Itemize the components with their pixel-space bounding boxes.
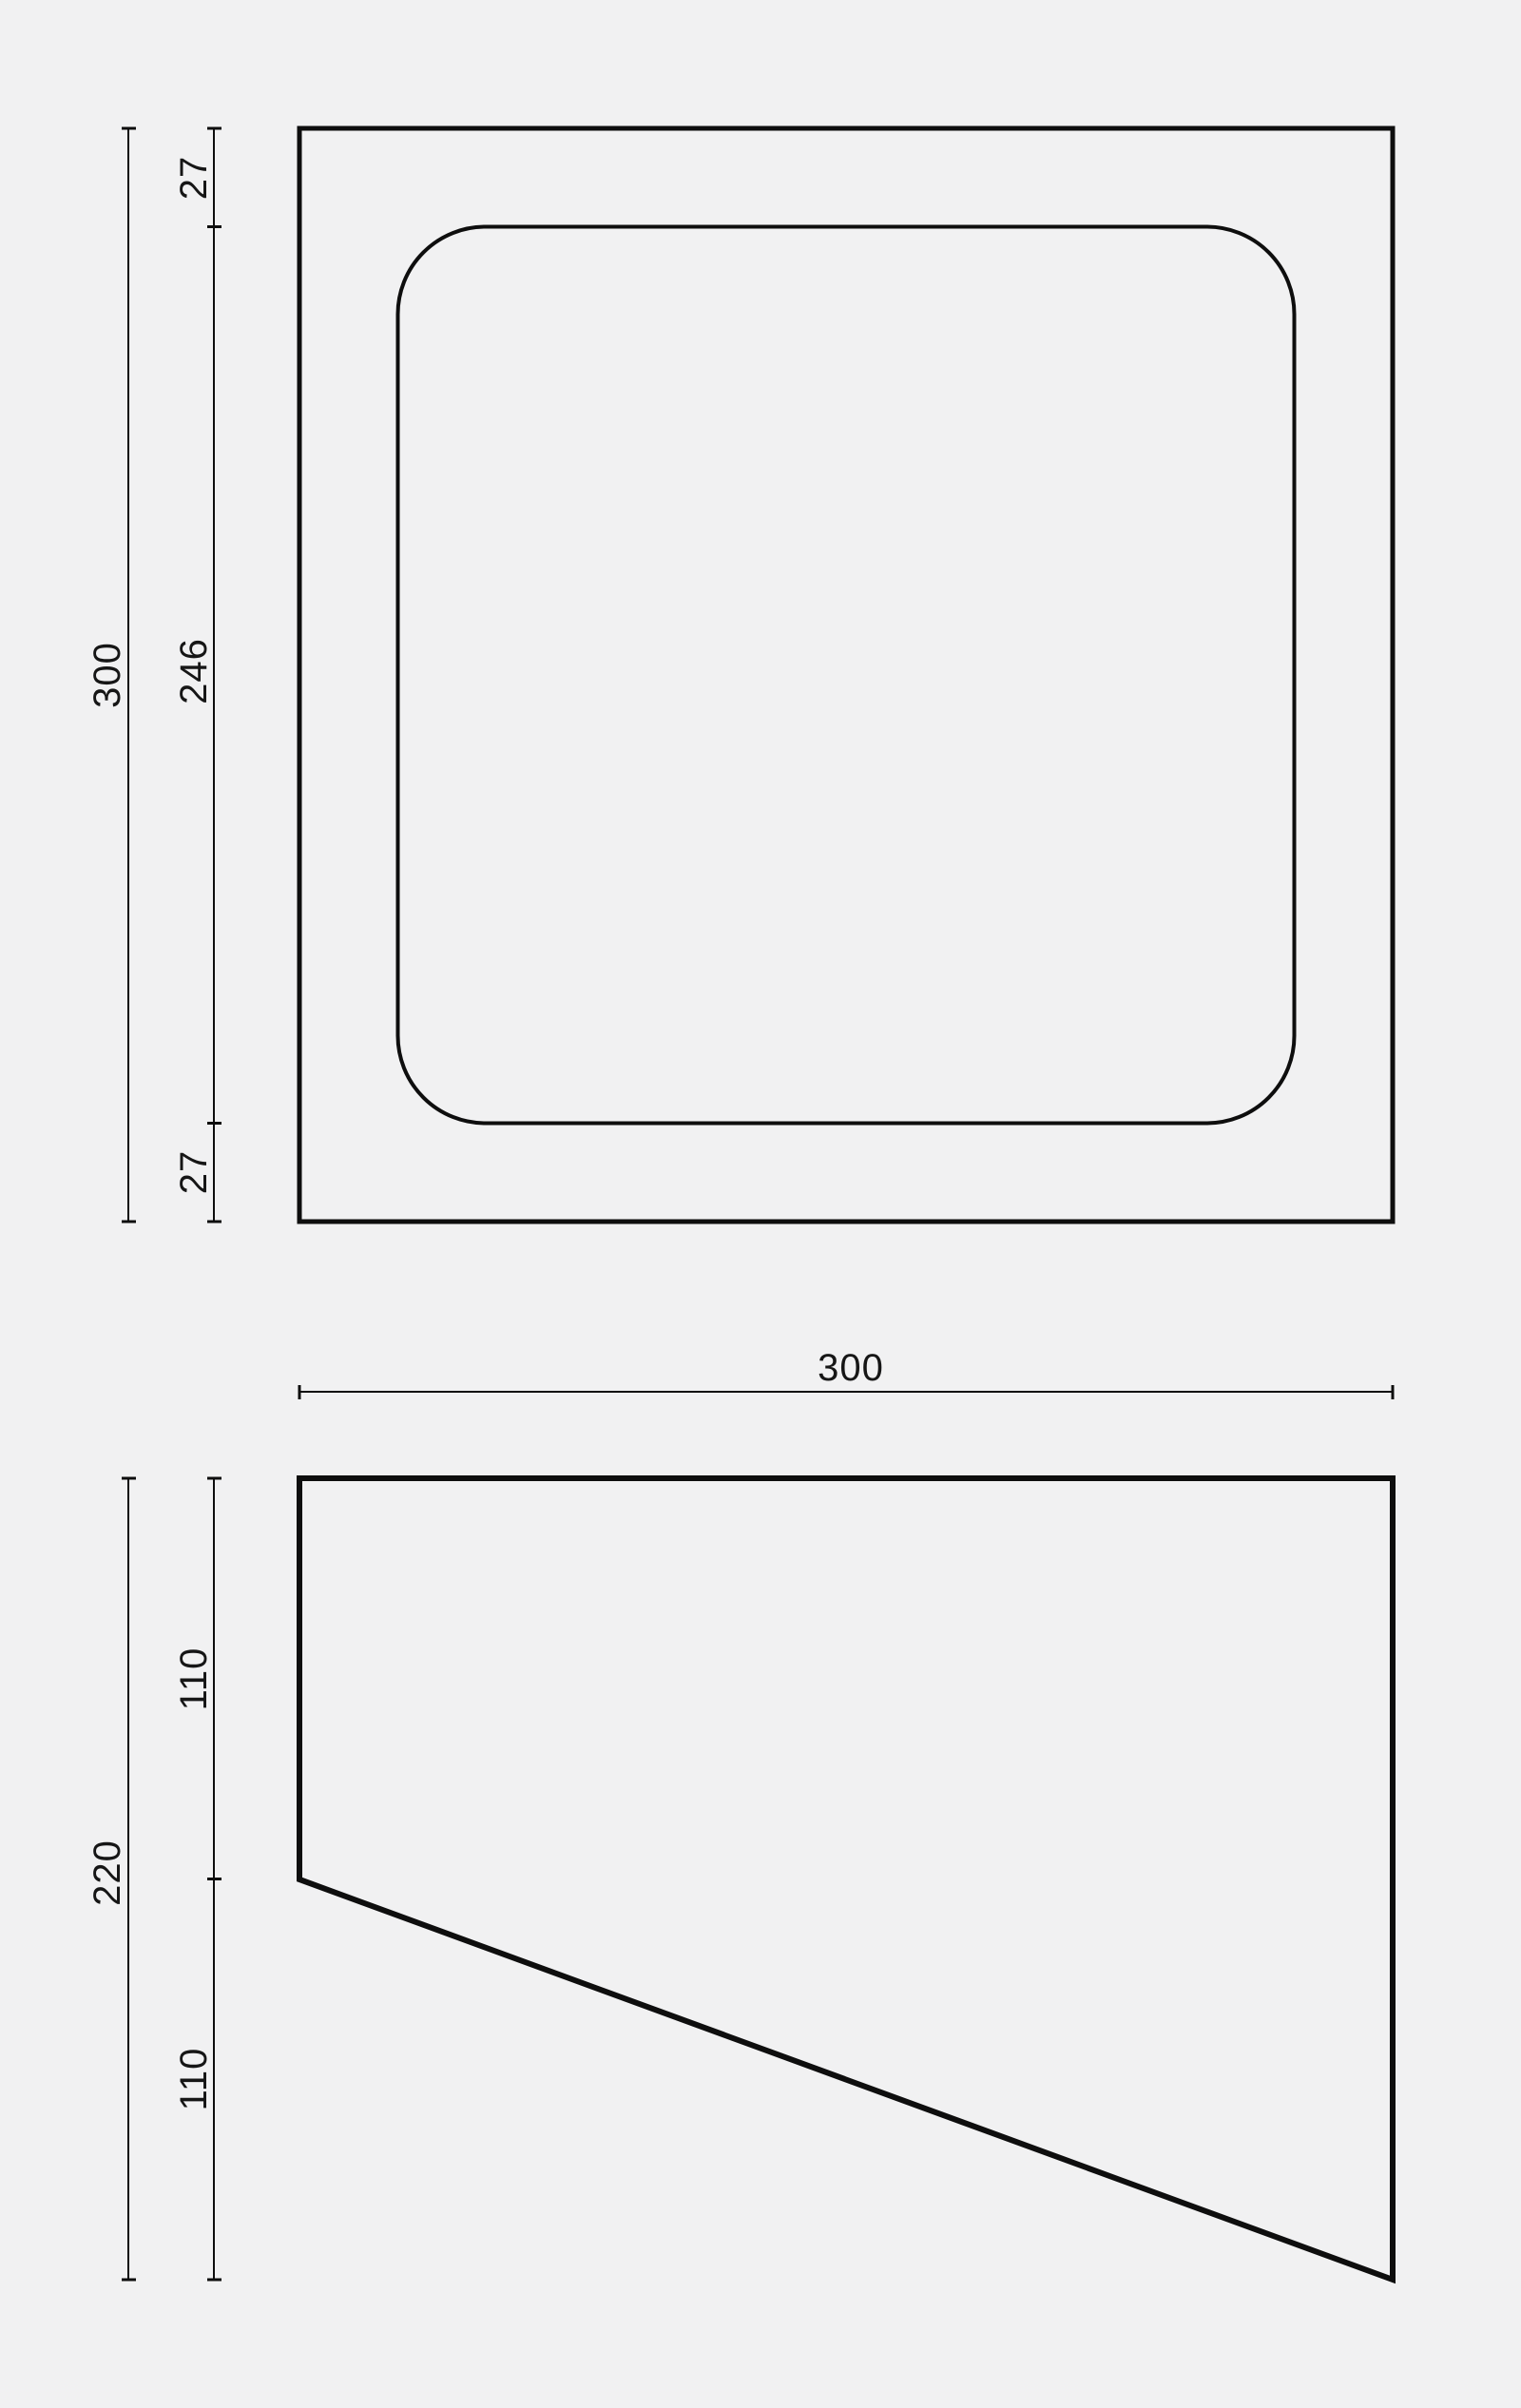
profile-dim-lower-label: 110 xyxy=(173,2048,215,2111)
plan-inner-rounded-square xyxy=(398,227,1295,1124)
plan-dim-margin-bottom-label: 27 xyxy=(173,1150,215,1195)
plan-dim-opening-label: 246 xyxy=(173,638,215,704)
plan-dim-margin-top-label: 27 xyxy=(173,156,215,201)
profile-dim-total-label: 220 xyxy=(87,1840,128,1906)
profile-dim-segments: 110 110 xyxy=(173,1478,221,2280)
profile-dim-width: 300 xyxy=(299,1347,1393,1399)
plan-dim-total-height: 300 xyxy=(87,128,136,1222)
drawing-canvas: 300 27 246 27 300 xyxy=(0,0,1521,2408)
plan-dim-segments: 27 246 27 xyxy=(173,128,221,1222)
technical-drawing-page: 300 27 246 27 300 xyxy=(0,0,1521,2408)
plan-view: 300 27 246 27 xyxy=(87,128,1393,1222)
plan-outer-square xyxy=(299,128,1393,1222)
plan-dim-total-label: 300 xyxy=(87,642,128,708)
profile-dim-total-height: 220 xyxy=(87,1478,136,2280)
profile-dim-upper-label: 110 xyxy=(173,1647,215,1711)
profile-view: 300 220 110 110 xyxy=(87,1347,1393,2280)
profile-wedge-outline xyxy=(299,1478,1393,2280)
profile-dim-width-label: 300 xyxy=(818,1347,884,1389)
